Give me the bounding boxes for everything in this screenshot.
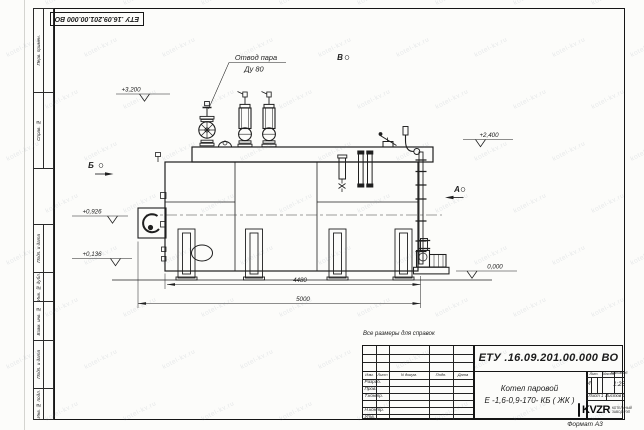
elevation-marks [72,94,517,278]
product-name-line2: Е -1,6-0,9-170- КБ ( ЖК ) [485,395,575,407]
steam-outlet-label-line2: Ду 80 [243,65,264,74]
valve-icon [339,184,346,189]
elevation-0000-label: 0,000 [487,264,503,271]
rev-col-ndocum: N докум. [389,372,429,379]
lit-header: Лит. [586,371,602,376]
kvzr-logo-caption: КОТЕЛЬНЫЙ ЗАВОД РЭП [612,406,632,414]
format-label: Формат А3 [545,421,625,428]
lit-value: И [586,377,591,393]
kvzr-logo-text: KVZR [582,404,610,416]
steam-outlet-valve [199,102,215,146]
steam-drum-top [192,147,433,162]
pump-motor [430,255,447,268]
manufacturer-logo: KVZR КОТЕЛЬНЫЙ ЗАВОД РЭП [586,400,624,420]
rev-col-list: Лист [376,372,389,379]
elevation-2400-label: +2,400 [479,132,499,139]
view-label-a: А [453,185,460,194]
rev-col-izm: Изм. [363,372,376,379]
safety-valve-2 [262,92,277,147]
product-name-cell: Котел паровой Е -1,6-0,9-170- КБ ( ЖК ) [473,371,586,420]
sheet-number: Лист 1 [586,393,606,400]
sig-row-nkontr: Н.контр. [365,408,384,413]
view-arrow-b [95,164,114,176]
drawing-sheet: Перв. примен. Справ. № Подп. и дата Инв.… [0,0,644,430]
steam-outlet-label-line1: Отвод пара [235,53,277,62]
dimension-4480-label: 4480 [293,277,307,284]
lever-safety-valve [379,132,397,147]
title-block: Изм. Лист N докум. Подп. Дата Разраб. Пр… [362,345,623,419]
kvzr-logo-icon [578,403,580,417]
scale-header: Масштаб [614,371,624,376]
sig-row-prov: Пров. [365,387,377,392]
view-label-v: В [337,53,343,62]
sampling-column [338,155,347,192]
reference-note: Все размеры для справок [363,331,435,337]
view-label-b: Б [88,161,94,170]
elevation-0926-label: +0,926 [82,209,102,216]
pump-base [414,267,450,274]
dimension-5000-label: 5000 [296,296,310,303]
safety-valve-1 [238,92,253,147]
rev-col-data: Дата [453,372,473,379]
burner [138,208,166,238]
siphon-tube [403,127,420,155]
product-name-line1: Котел паровой [501,383,558,395]
titleblock-designation: ЕТУ .16.09.201.00.000 ВО [473,346,624,371]
kvzr-caption-line2: ЗАВОД РЭП [612,410,632,414]
water-level-gauge [357,151,373,188]
sig-row-utv: Утв. [365,415,375,420]
dimension-5000 [138,242,421,309]
sig-row-tkontr: Т.контр. [365,394,384,399]
elevation-3200-label: +3,200 [121,87,141,94]
drum-dome [219,141,232,147]
rev-col-podp: Подп. [429,372,453,379]
support-legs [176,229,414,280]
kvzr-caption-line1: КОТЕЛЬНЫЙ [612,406,632,410]
view-label-v-circle [345,56,349,60]
scale-value: 1:25 [614,377,624,393]
elevation-0136-label: +0,136 [82,251,102,258]
sheets-total: Листов 2 [606,393,624,400]
sig-row-razrab: Разраб. [365,380,382,385]
downcomer-pipe [416,152,427,264]
drain-cock [156,153,161,157]
